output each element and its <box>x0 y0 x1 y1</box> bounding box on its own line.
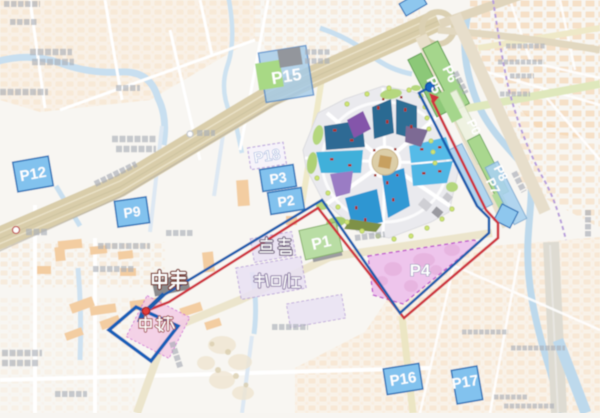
svg-text:P4: P4 <box>410 261 431 280</box>
svg-text:P9: P9 <box>122 203 141 221</box>
svg-text:P3: P3 <box>268 169 288 188</box>
svg-text:P2: P2 <box>276 192 296 211</box>
